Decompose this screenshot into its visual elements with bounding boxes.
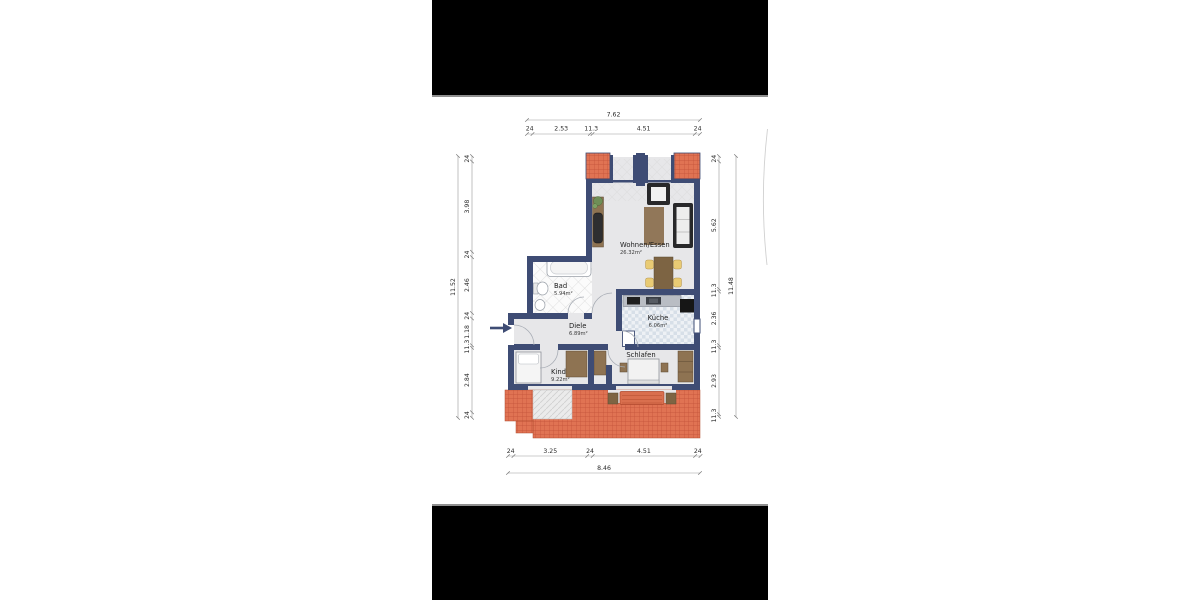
room-label-diele: Diele [569,322,586,330]
cooktop [627,297,640,305]
dim-left-1: 3.98 [464,200,471,214]
dim-bottom-1: 3.25 [543,448,557,455]
flower-box [620,392,664,405]
letterbox-bottom [432,504,768,600]
dimension-chain-right: 11.48 24 5.62 11.3 2.36 11.3 2.93 11.3 [711,154,738,422]
dim-left-5: 1.18 [464,325,471,339]
room-area-diele: 6.89m² [569,331,588,337]
dimension-chain-bottom: 8.46 24 3.25 24 4.51 24 [506,448,702,475]
dim-left-3: 2.46 [464,278,471,292]
dim-right-0: 24 [711,155,718,163]
window-jamb [610,155,613,183]
dim-bottom-3: 4.51 [637,448,651,455]
bedroom-wardrobe [678,351,693,382]
dim-left-total: 11.52 [450,278,457,296]
washbasin [535,300,545,311]
screenshot-stage: Wohnen/Essen 26.32m² Küche 6.06m² Bad 5.… [0,0,1200,600]
letterbox-top [432,0,768,97]
floor-plan-image: Wohnen/Essen 26.32m² Küche 6.06m² Bad 5.… [432,97,768,504]
dim-top-0: 24 [526,126,534,133]
dim-top-total: 7.62 [607,112,621,119]
room-area-kueche: 6.06m² [649,323,668,329]
balcony-post [666,393,676,404]
kitchen-window [694,319,700,333]
dim-right-2: 11.3 [711,283,718,297]
dining-chair [674,260,682,269]
dim-top-3: 4.51 [637,126,651,133]
dim-right-6: 11.3 [711,409,718,423]
window-sill [528,384,572,386]
room-area-kind: 9.22m² [551,377,570,383]
room-label-kind: Kind [551,368,566,376]
balcony-door-sill [616,384,672,386]
dining-table [654,257,673,290]
dim-right-3: 2.36 [711,311,718,325]
nightstand [620,363,627,372]
dim-left-4: 24 [464,312,471,320]
exterior-brick-bottom [505,390,700,438]
room-area-bad: 5.94m² [554,291,573,297]
dim-top-1: 2.53 [554,126,568,133]
dimension-chain-left: 11.52 24 3.98 24 2.46 24 1.18 11.3 2.84 … [450,154,474,420]
exterior-brick-top-right [674,153,700,179]
dim-bottom-2: 24 [586,448,594,455]
dim-left-7: 2.84 [464,373,471,387]
dim-right-5: 2.93 [711,374,718,388]
hall-closet [594,351,606,375]
dim-left-8: 24 [464,411,471,419]
dim-right-total: 11.48 [728,277,735,295]
dim-bottom-0: 24 [507,448,515,455]
dining-chair [646,260,654,269]
dim-top-4: 24 [694,126,702,133]
window-sill [648,180,671,183]
dim-bottom-total: 8.46 [597,465,611,472]
dim-right-1: 5.62 [711,218,718,232]
dim-bottom-4: 24 [694,448,702,455]
page-curl-line [763,129,767,265]
room-label-schlafen: Schlafen [626,351,655,359]
nightstand [661,363,668,372]
fridge [680,299,694,313]
dim-top-2: 11.3 [584,126,598,133]
room-label-kueche: Küche [648,314,669,322]
chaise [594,213,603,243]
pillow [519,354,539,364]
dim-right-4: 11.3 [711,340,718,354]
dim-left-2: 24 [464,251,471,259]
rug [644,207,664,245]
dining-chair [674,278,682,287]
content-column: Wohnen/Essen 26.32m² Küche 6.06m² Bad 5.… [432,0,768,600]
window-sill [613,180,633,183]
room-label-wohnen-essen: Wohnen/Essen [620,241,670,249]
room-area-wohnen-essen: 26.32m² [620,250,642,256]
light-shaft [533,390,572,419]
dim-left-0: 24 [464,155,471,163]
balcony-post [608,393,618,404]
wardrobe [566,351,587,377]
toilet [537,282,548,295]
dimension-chain-top: 7.62 24 2.53 11.3 4.51 24 [525,112,702,136]
dim-left-6: 11.3 [464,340,471,354]
room-label-bad: Bad [554,282,567,290]
exterior-brick-top-left [586,153,610,179]
dining-chair [646,278,654,287]
